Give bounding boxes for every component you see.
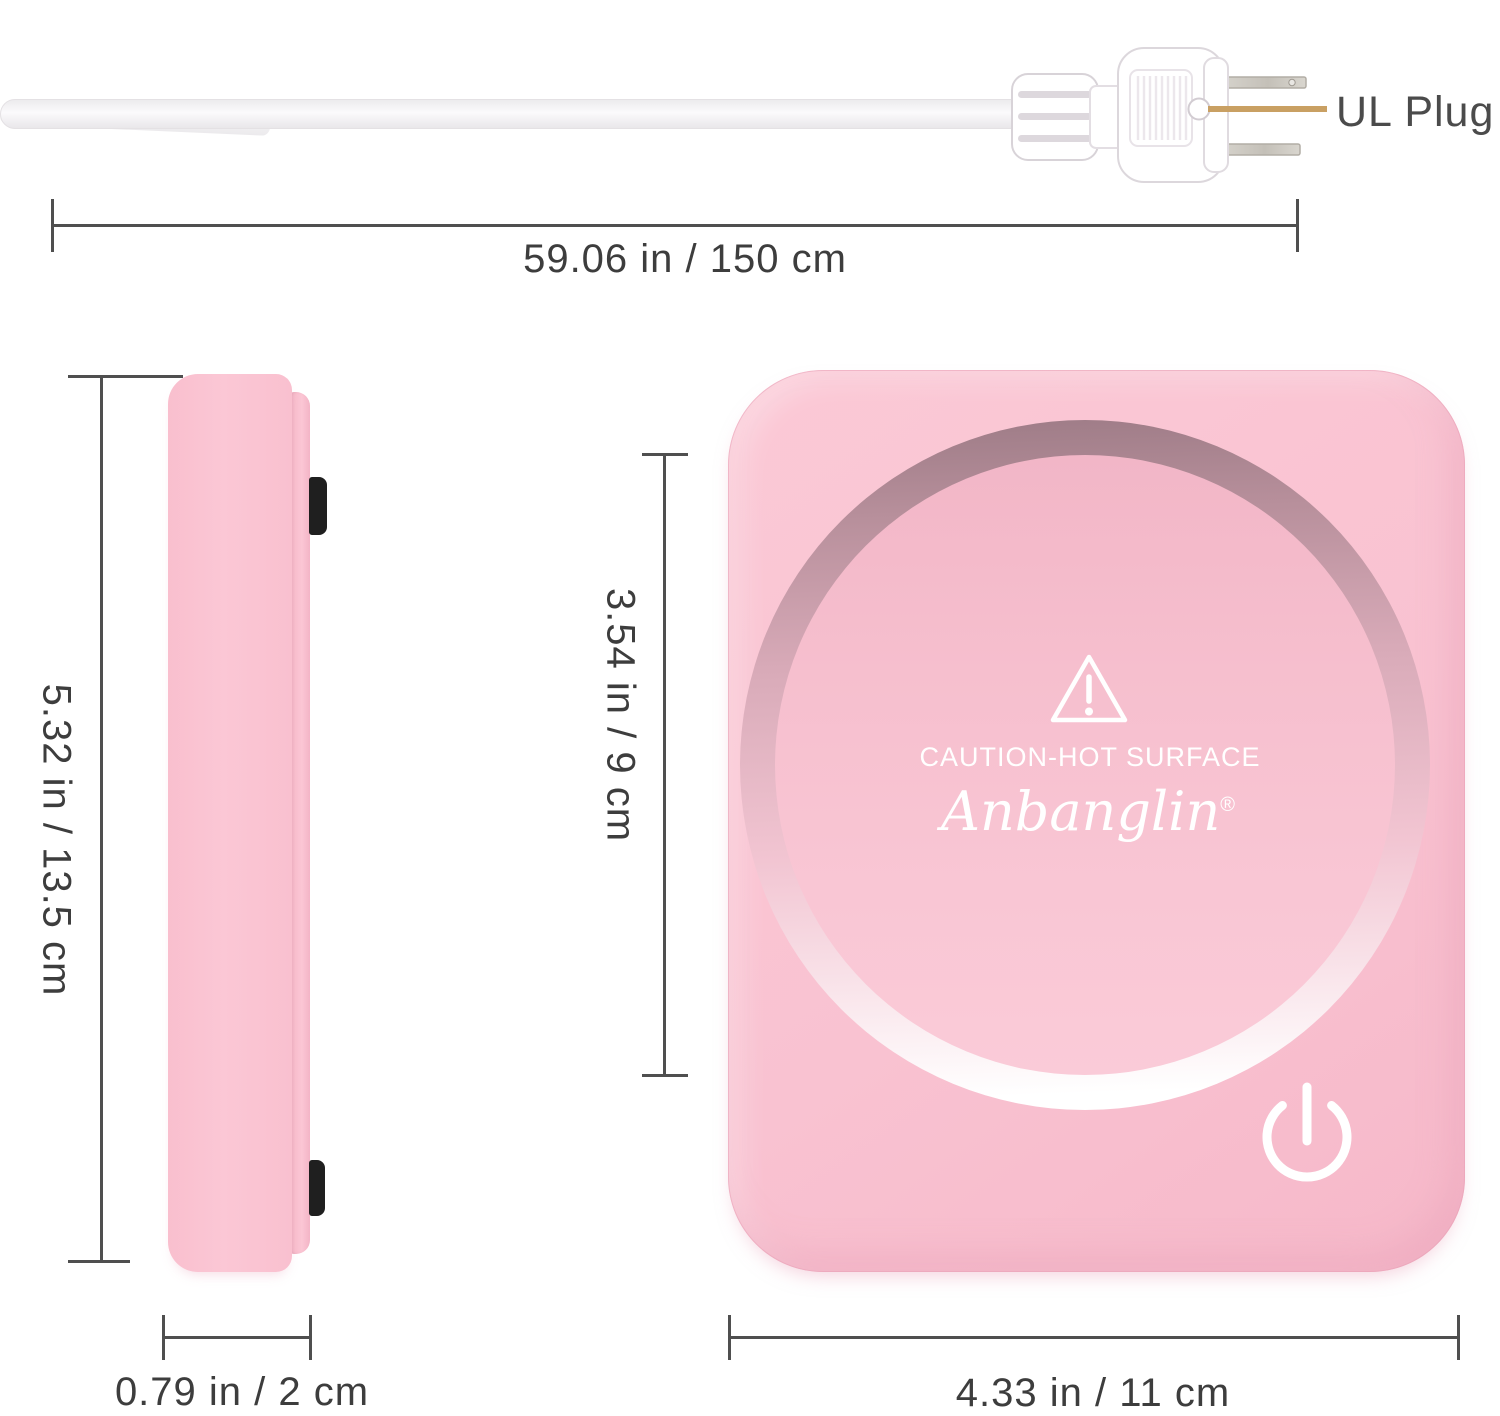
side-view-top-plate-edge (290, 392, 310, 1254)
thickness-dimension-tick-left (162, 1315, 165, 1360)
width-dimension-tick-left (728, 1315, 731, 1360)
product-dimension-diagram: UL Plug 59.06 in / 150 cm 5.32 in / 13.5… (0, 0, 1500, 1416)
height-dimension-tick-top (68, 375, 183, 378)
rubber-pad-top (309, 477, 327, 535)
plate-dimension-tick-top (642, 453, 688, 456)
cord-dimension-line (52, 224, 1298, 227)
height-dimension-line (100, 377, 103, 1263)
height-dimension-tick-bottom (68, 1260, 130, 1263)
plug-prong-top (1222, 77, 1306, 88)
width-dimension-tick-right (1457, 1315, 1460, 1360)
brand-text: Anbanglin® (888, 780, 1288, 843)
plate-dimension-tick-bottom (642, 1074, 688, 1077)
warning-triangle-icon (1049, 653, 1129, 725)
power-cord (0, 99, 1040, 129)
caution-hot-surface-text: CAUTION-HOT SURFACE (890, 742, 1290, 773)
plug-hole (1189, 99, 1210, 120)
rubber-pad-bottom (309, 1160, 325, 1216)
width-dimension-line (729, 1336, 1459, 1339)
ul-plug-leader-line (1208, 106, 1327, 112)
plug-strain-relief (1012, 74, 1098, 160)
thickness-dimension-line (163, 1336, 311, 1339)
device-thickness-label: 0.79 in / 2 cm (115, 1370, 369, 1415)
power-icon (1257, 1080, 1357, 1184)
cord-dimension-tick-right (1296, 199, 1299, 252)
device-height-label: 5.32 in / 13.5 cm (34, 684, 79, 997)
plate-diameter-label: 3.54 in / 9 cm (598, 588, 643, 842)
plate-dimension-line (663, 454, 666, 1076)
thickness-dimension-tick-right (309, 1315, 312, 1360)
plug-body (1118, 48, 1228, 182)
plug-prong-bottom (1222, 144, 1300, 155)
side-view-body (168, 374, 292, 1272)
ul-plug-label: UL Plug (1336, 88, 1494, 137)
cord-dimension-tick-left (51, 199, 54, 252)
power-plug (1010, 30, 1335, 200)
brand-name: Anbanglin (941, 780, 1220, 843)
cord-length-label: 59.06 in / 150 cm (523, 237, 847, 282)
device-width-label: 4.33 in / 11 cm (956, 1371, 1230, 1416)
registered-mark: ® (1220, 794, 1235, 816)
